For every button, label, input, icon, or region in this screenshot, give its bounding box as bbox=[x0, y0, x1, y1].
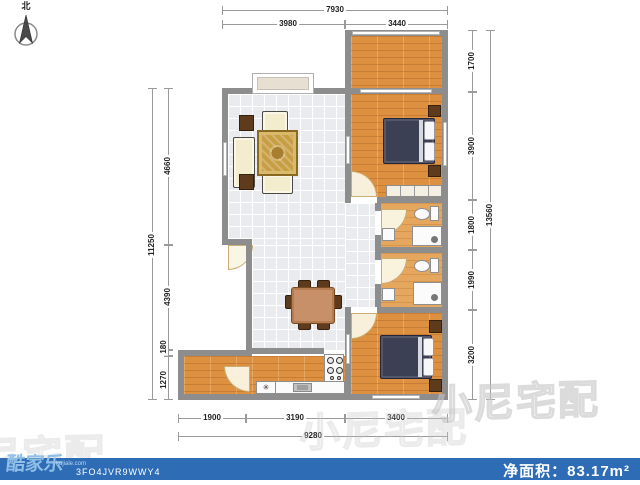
sink bbox=[382, 288, 395, 301]
loveseat bbox=[262, 174, 293, 194]
dim-label: 180 bbox=[160, 338, 168, 355]
toilet-icon bbox=[414, 260, 430, 272]
stove-knob-icon bbox=[330, 376, 334, 380]
shower-drain-icon bbox=[431, 236, 438, 243]
burner-icon bbox=[327, 357, 334, 364]
wall-dining-left bbox=[246, 245, 252, 356]
side-table bbox=[239, 115, 254, 131]
pillow bbox=[423, 338, 434, 356]
dim-label: 1900 bbox=[201, 414, 223, 422]
kitchen-sink-basin bbox=[297, 385, 308, 390]
nightstand bbox=[428, 165, 441, 177]
dim-label: 7930 bbox=[324, 6, 346, 14]
dim-label: 1700 bbox=[468, 50, 476, 72]
shower-drain-icon bbox=[431, 294, 438, 301]
wall-kitchen-top bbox=[252, 348, 324, 354]
dim-label: 3400 bbox=[385, 414, 407, 422]
net-area: 净面积：83.17m² bbox=[503, 460, 630, 481]
burner-icon bbox=[336, 357, 343, 364]
dim-label: 11250 bbox=[148, 232, 156, 258]
dim-label: 3200 bbox=[468, 344, 476, 366]
stove-knob-icon bbox=[337, 376, 341, 380]
bed-fold bbox=[419, 120, 423, 162]
shower bbox=[412, 226, 442, 246]
pillow bbox=[423, 358, 434, 376]
window-living-east bbox=[346, 136, 350, 164]
window-balcony-divider bbox=[360, 89, 432, 93]
net-area-label: 净面积： bbox=[503, 463, 567, 480]
dim-label: 4660 bbox=[164, 155, 172, 177]
toilet-tank bbox=[430, 206, 439, 221]
window-bedroom-1 bbox=[443, 122, 447, 166]
window-living-left bbox=[223, 142, 227, 176]
wall-bathroom-divider bbox=[381, 247, 442, 253]
floor-drain-icon: ✳ bbox=[256, 381, 276, 394]
toilet-icon bbox=[414, 208, 430, 220]
dim-label: 4390 bbox=[164, 286, 172, 308]
bay-window-sill bbox=[257, 77, 309, 90]
floor-balcony bbox=[351, 36, 442, 88]
nightstand bbox=[428, 105, 441, 117]
dim-label: 13560 bbox=[486, 202, 494, 228]
plan-code: 3FO4JVR9WWY4 bbox=[76, 467, 161, 477]
shower bbox=[413, 282, 442, 305]
wall-entry-left bbox=[178, 350, 184, 400]
wardrobe bbox=[386, 185, 442, 197]
dim-label: 1990 bbox=[468, 269, 476, 291]
side-table bbox=[239, 174, 254, 190]
nightstand bbox=[429, 320, 442, 333]
burner-icon bbox=[327, 367, 334, 374]
compass-north-label: 北 bbox=[8, 2, 44, 11]
floor-hallway bbox=[345, 203, 375, 307]
sink bbox=[382, 228, 395, 241]
wall-bathroom-west-c bbox=[375, 284, 381, 307]
pillow bbox=[424, 142, 435, 161]
window-bedroom-2-left bbox=[346, 334, 350, 364]
dim-label: 1270 bbox=[160, 369, 168, 391]
rug bbox=[257, 130, 298, 176]
dim-line bbox=[168, 356, 169, 400]
window-bedroom-2-bottom bbox=[372, 395, 420, 399]
bed-fold bbox=[418, 337, 422, 377]
footer-banner: 酷家乐 kujiale.com 3FO4JVR9WWY4 净面积：83.17m² bbox=[0, 458, 640, 480]
dim-label: 9280 bbox=[302, 432, 324, 440]
compass-icon bbox=[9, 11, 43, 49]
floorplan-canvas: 北 bbox=[0, 0, 640, 480]
toilet-tank bbox=[430, 258, 439, 273]
dim-label: 3900 bbox=[468, 135, 476, 157]
wall-balcony-left bbox=[345, 30, 351, 94]
wall-bedroom-2-top bbox=[377, 307, 448, 313]
wall-bedroom-1-bottom bbox=[377, 197, 448, 203]
nightstand bbox=[429, 379, 442, 392]
watermark-text: 小尼宅配 bbox=[432, 367, 600, 431]
pillow bbox=[424, 121, 435, 140]
dim-label: 3980 bbox=[277, 20, 299, 28]
window-balcony bbox=[352, 31, 440, 35]
compass: 北 bbox=[8, 2, 44, 54]
dim-label: 3440 bbox=[386, 20, 408, 28]
watermark-text: 小尼宅配 bbox=[300, 395, 468, 459]
dim-label: 3190 bbox=[284, 414, 306, 422]
dining-table bbox=[291, 287, 335, 324]
wall-entry-top bbox=[178, 350, 252, 356]
net-area-value: 83.17m² bbox=[567, 463, 630, 480]
dim-label: 1800 bbox=[468, 214, 476, 236]
burner-icon bbox=[336, 367, 343, 374]
wall-bathroom-west-a bbox=[375, 203, 381, 211]
wall-right bbox=[442, 30, 448, 400]
